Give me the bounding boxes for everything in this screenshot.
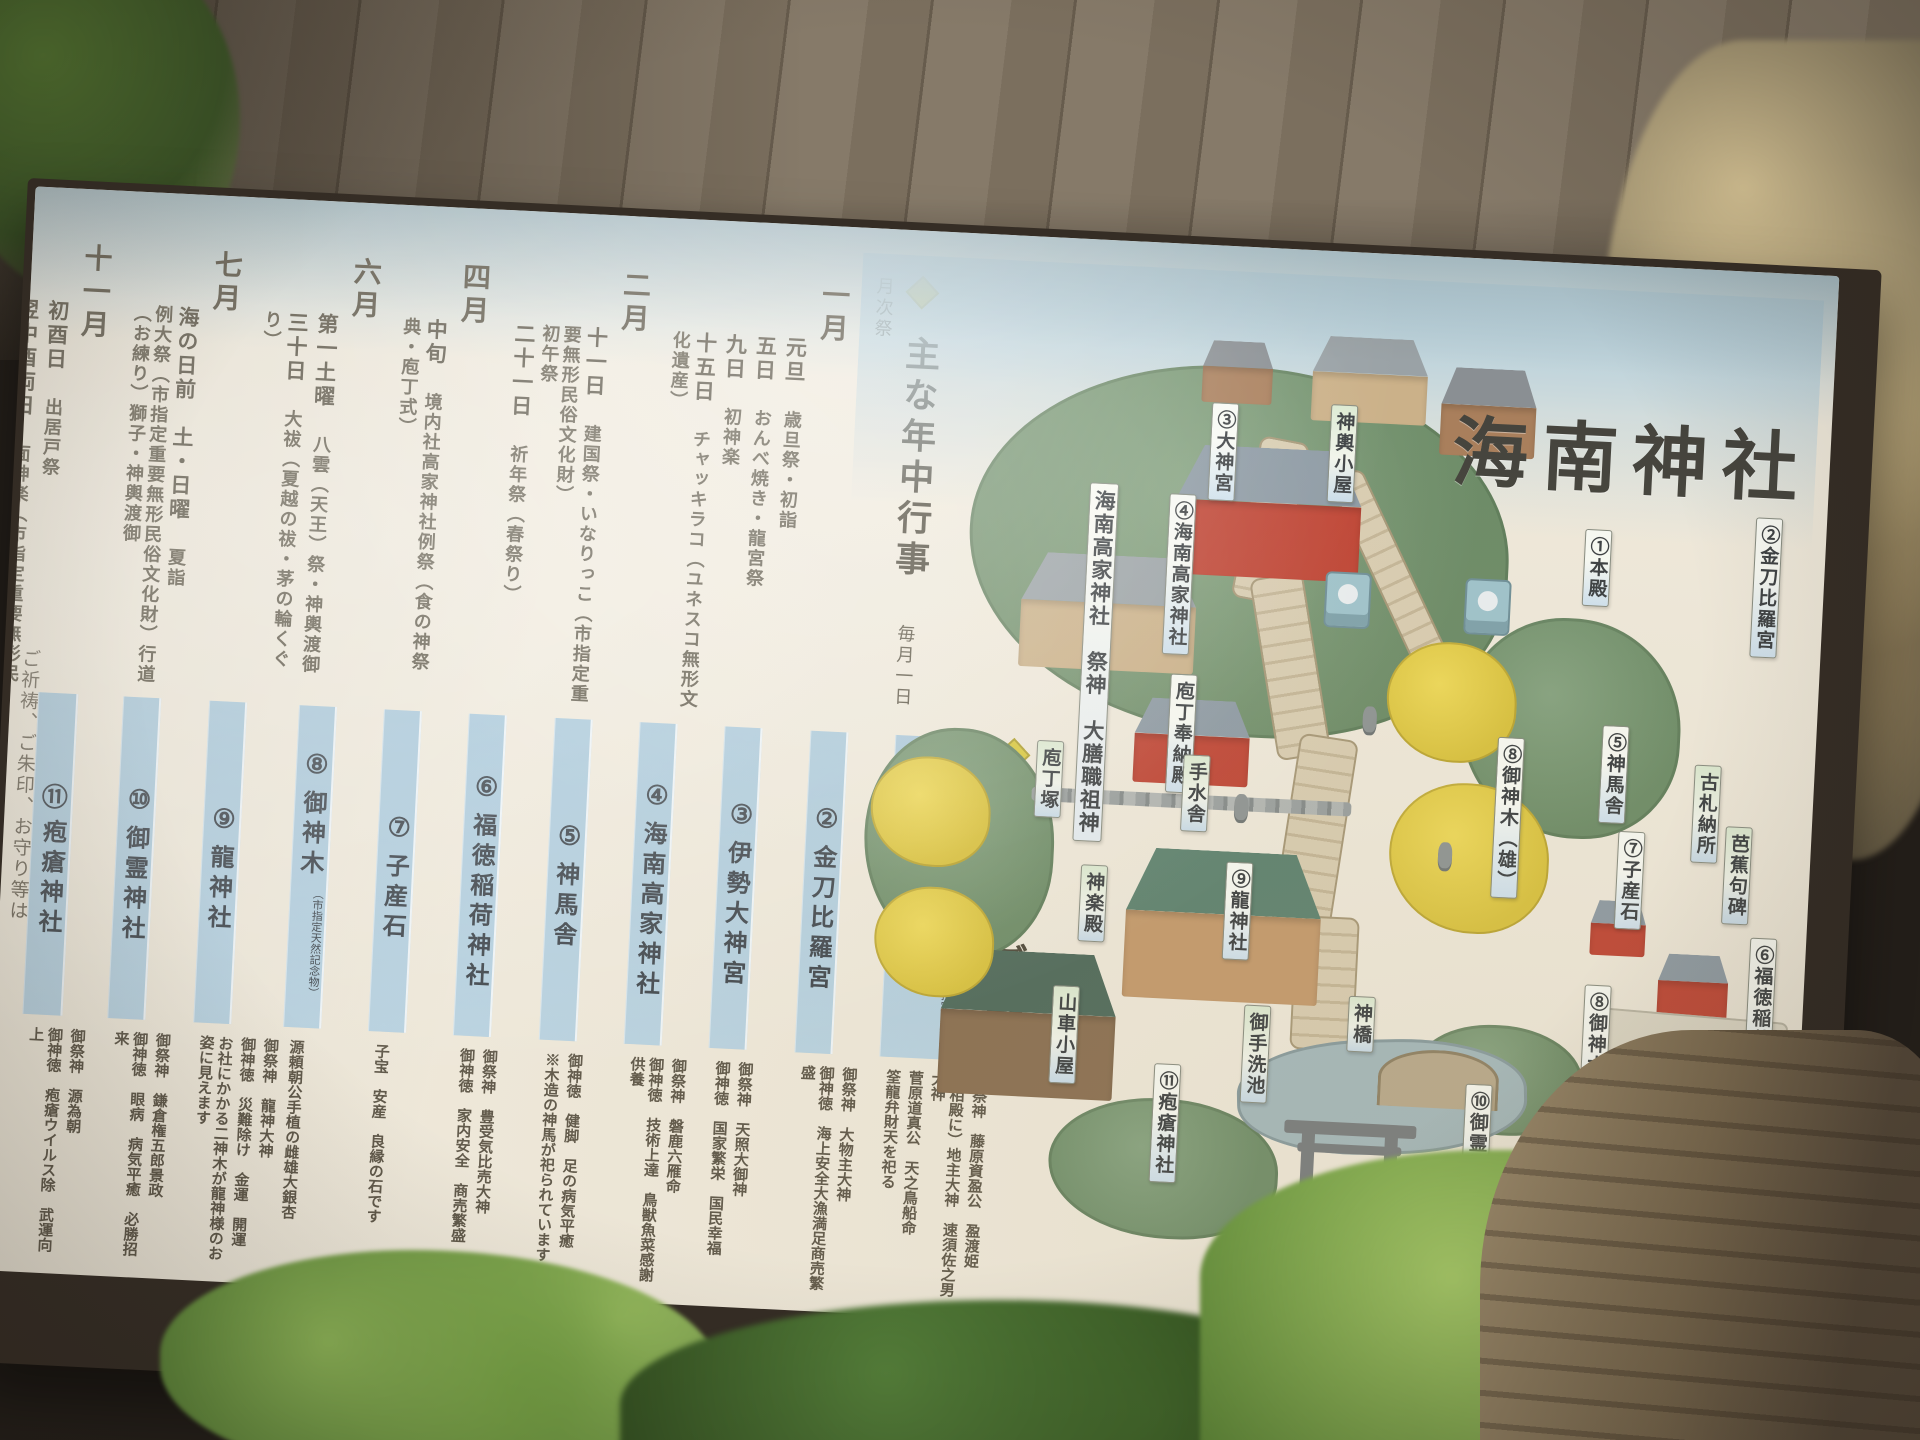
map-label-18: 神橋	[1346, 996, 1376, 1053]
guide-item-description: 子宝 安産 良縁の石です	[356, 1031, 391, 1282]
event-month-5: 七月海の日前 土・日曜夏詣例大祭（市指定重要無形民俗文化財）行道（お練り）獅子・…	[112, 239, 247, 696]
guide-item-title: 福徳稲荷神社	[456, 812, 500, 994]
guide-item-description: 御神徳 健脚 足の病気平癒※木造の神馬が祀られています	[526, 1039, 584, 1291]
guide-item-title: 子産石	[373, 852, 412, 944]
guide-item-title: 龍神社	[198, 844, 237, 936]
stone-lantern	[1234, 794, 1249, 821]
map-label-7: ①本殿	[1582, 529, 1613, 607]
guide-item-name: ⑥福徳稲荷神社	[453, 714, 507, 1037]
event-date: 元旦	[782, 336, 808, 385]
map-label-17: 神楽殿	[1077, 864, 1108, 942]
photo-scene: 主な年中行事 毎月一日 月次祭 一月元旦歳旦祭・初詣五日おんべ焼き・龍宮祭九日初…	[0, 0, 1920, 1440]
guide-item-title: 神馬舎	[544, 861, 583, 953]
event-name: 祈年祭（春祭り）	[501, 444, 529, 605]
guide-item-description: 御祭神 源為朝御神徳 疱瘡ウイルス除 武運向上	[10, 1014, 87, 1267]
guide-description-line: 源頼朝公手植の雌雄大銀杏	[274, 1039, 305, 1278]
guide-item-name: ③伊勢大神宮	[709, 726, 763, 1049]
shrine-title: 海南神社	[1450, 390, 1815, 518]
map-label-12: 芭蕉句碑	[1721, 826, 1753, 925]
map-label-16: ⑨龍神社	[1222, 861, 1254, 960]
guide-item-description: 御祭神 龍神大神御神徳 災難除け 金運 開運お社にかかる二神木が龍神様のお姿に見…	[180, 1022, 279, 1276]
map-label-19: 御手洗池	[1240, 1005, 1272, 1104]
event-month-1: 一月元旦歳旦祭・初詣五日おんべ焼き・龍宮祭九日初神楽十五日チャッキラコ（ユネスコ…	[651, 266, 854, 726]
map-label-9: ⑤神馬舎	[1598, 725, 1630, 824]
event-date: 三十日	[282, 311, 310, 384]
guide-item-description: 御祭神 豊受気比売大神御神徳 家内安全 商売繁盛	[441, 1035, 499, 1287]
event-date: 九日	[722, 333, 748, 382]
event-name: 歳旦祭・初詣	[776, 410, 802, 531]
guide-item-number: ⑧	[296, 749, 332, 781]
event-date: 第一土曜	[311, 312, 340, 409]
guide-item-number: ⑤	[549, 821, 585, 853]
guide-item-name: ⑤神馬舎	[538, 718, 592, 1041]
map-label-10: 古札納所	[1690, 765, 1722, 864]
guide-item-note: （市指定天然記念物）	[285, 887, 325, 999]
annual-events-panel: 主な年中行事 毎月一日 月次祭 一月元旦歳旦祭・初詣五日おんべ焼き・龍宮祭九日初…	[66, 237, 949, 731]
event-name: おんべ焼き・龍宮祭	[743, 408, 772, 589]
guide-item-name: ⑨龍神社	[193, 701, 247, 1024]
guide-item-number: ③	[721, 799, 757, 831]
map-label-13: ⑦子産石	[1614, 831, 1646, 930]
guide-item-title: 御神木	[291, 789, 330, 881]
event-month-3: 四月中旬境内社高家神社例祭（食の神祭典・庖丁式）	[381, 253, 495, 709]
guide-item-number: ④	[636, 780, 672, 812]
map-label-6: 庖丁塚	[1033, 740, 1064, 818]
guide-item-number: ⑥	[466, 772, 502, 804]
guide-item-number: ⑪	[34, 782, 72, 810]
daijingu-illustration	[1201, 340, 1274, 405]
stone-lantern	[1437, 842, 1452, 869]
inari-shrine-illustration	[1656, 953, 1729, 1021]
event-name: 初神楽	[719, 407, 742, 468]
event-date: 中旬	[422, 318, 448, 367]
guide-item-name: ⑩御霊神社	[108, 696, 162, 1019]
guide-item-number: ⑨	[203, 804, 239, 836]
event-date: 十五日	[691, 331, 719, 404]
event-date: 十一日	[582, 326, 610, 399]
guide-item-title: 伊勢大神宮	[713, 839, 755, 991]
guide-item-number: ⑦	[378, 812, 414, 844]
guide-item-description: 御祭神 磐鹿六雁命御神徳 技術上達 鳥獣魚菜感謝供養	[611, 1044, 688, 1297]
event-month-2: 二月十一日建国祭・いなりっこ（市指定重要無形民俗文化財）初午祭二十一日祈年祭（春…	[490, 258, 655, 717]
guide-item-name: ④海南高家神社	[624, 722, 678, 1045]
event-name: 夏詣	[165, 547, 187, 588]
guide-item-title: 御霊神社	[112, 824, 153, 946]
guide-description-line: 御神徳 眼病 病気平癒 必勝招来	[99, 1030, 148, 1270]
guide-description-line: 子宝 安産 良縁の石です	[360, 1043, 391, 1282]
event-date: 二十一日	[508, 322, 537, 419]
guide-description-line: お社にかかる二神木が龍神様のお姿に見えます	[184, 1034, 233, 1274]
guide-description-line: 御神徳 技術上達 鳥獣魚菜感謝供養	[615, 1056, 664, 1296]
guide-item-title: 海南高家神社	[627, 820, 671, 1002]
guide-item-name: ⑦子産石	[368, 709, 422, 1032]
map-label-8: ②金刀比羅宮	[1749, 517, 1783, 658]
event-name: 境内社高家神社例祭（食の神祭典・庖丁式）	[396, 317, 443, 673]
event-month-4: 六月第一土曜八雲（天王）祭・神輿渡御三十日大祓（夏越の祓・茅の輪くぐり）	[242, 246, 386, 703]
offering-barrel	[1463, 578, 1512, 636]
map-label-20: 山車小屋	[1048, 985, 1080, 1084]
guide-item-title: 疱瘡神社	[27, 818, 70, 940]
guide-description-line: 御神徳 疱瘡ウイルス除 武運向上	[14, 1026, 63, 1266]
map-label-15: 手水舎	[1180, 754, 1211, 832]
event-name: 出居戸祭	[40, 397, 64, 478]
guide-item-description: 御祭神 鎌倉権五郎景政御神徳 眼病 病気平癒 必勝招来	[95, 1018, 172, 1271]
guide-item-name: ⑧御神木（市指定天然記念物）	[283, 705, 337, 1028]
event-date: 五日	[752, 334, 778, 383]
event-name: 初午祭	[538, 324, 561, 385]
guide-item-number: ⑩	[119, 784, 155, 816]
guide-item-description: 御祭神 天照大御神御神徳 国家繁栄 国民幸福	[697, 1048, 755, 1300]
map-label-2: ③大神宮	[1207, 402, 1239, 501]
stone-lantern	[1362, 706, 1377, 733]
mikoshi-shed-illustration	[1311, 335, 1430, 426]
event-date: 初酉日	[43, 299, 71, 372]
offering-barrel	[1323, 571, 1372, 629]
map-label-1: 神輿小屋	[1326, 404, 1358, 503]
